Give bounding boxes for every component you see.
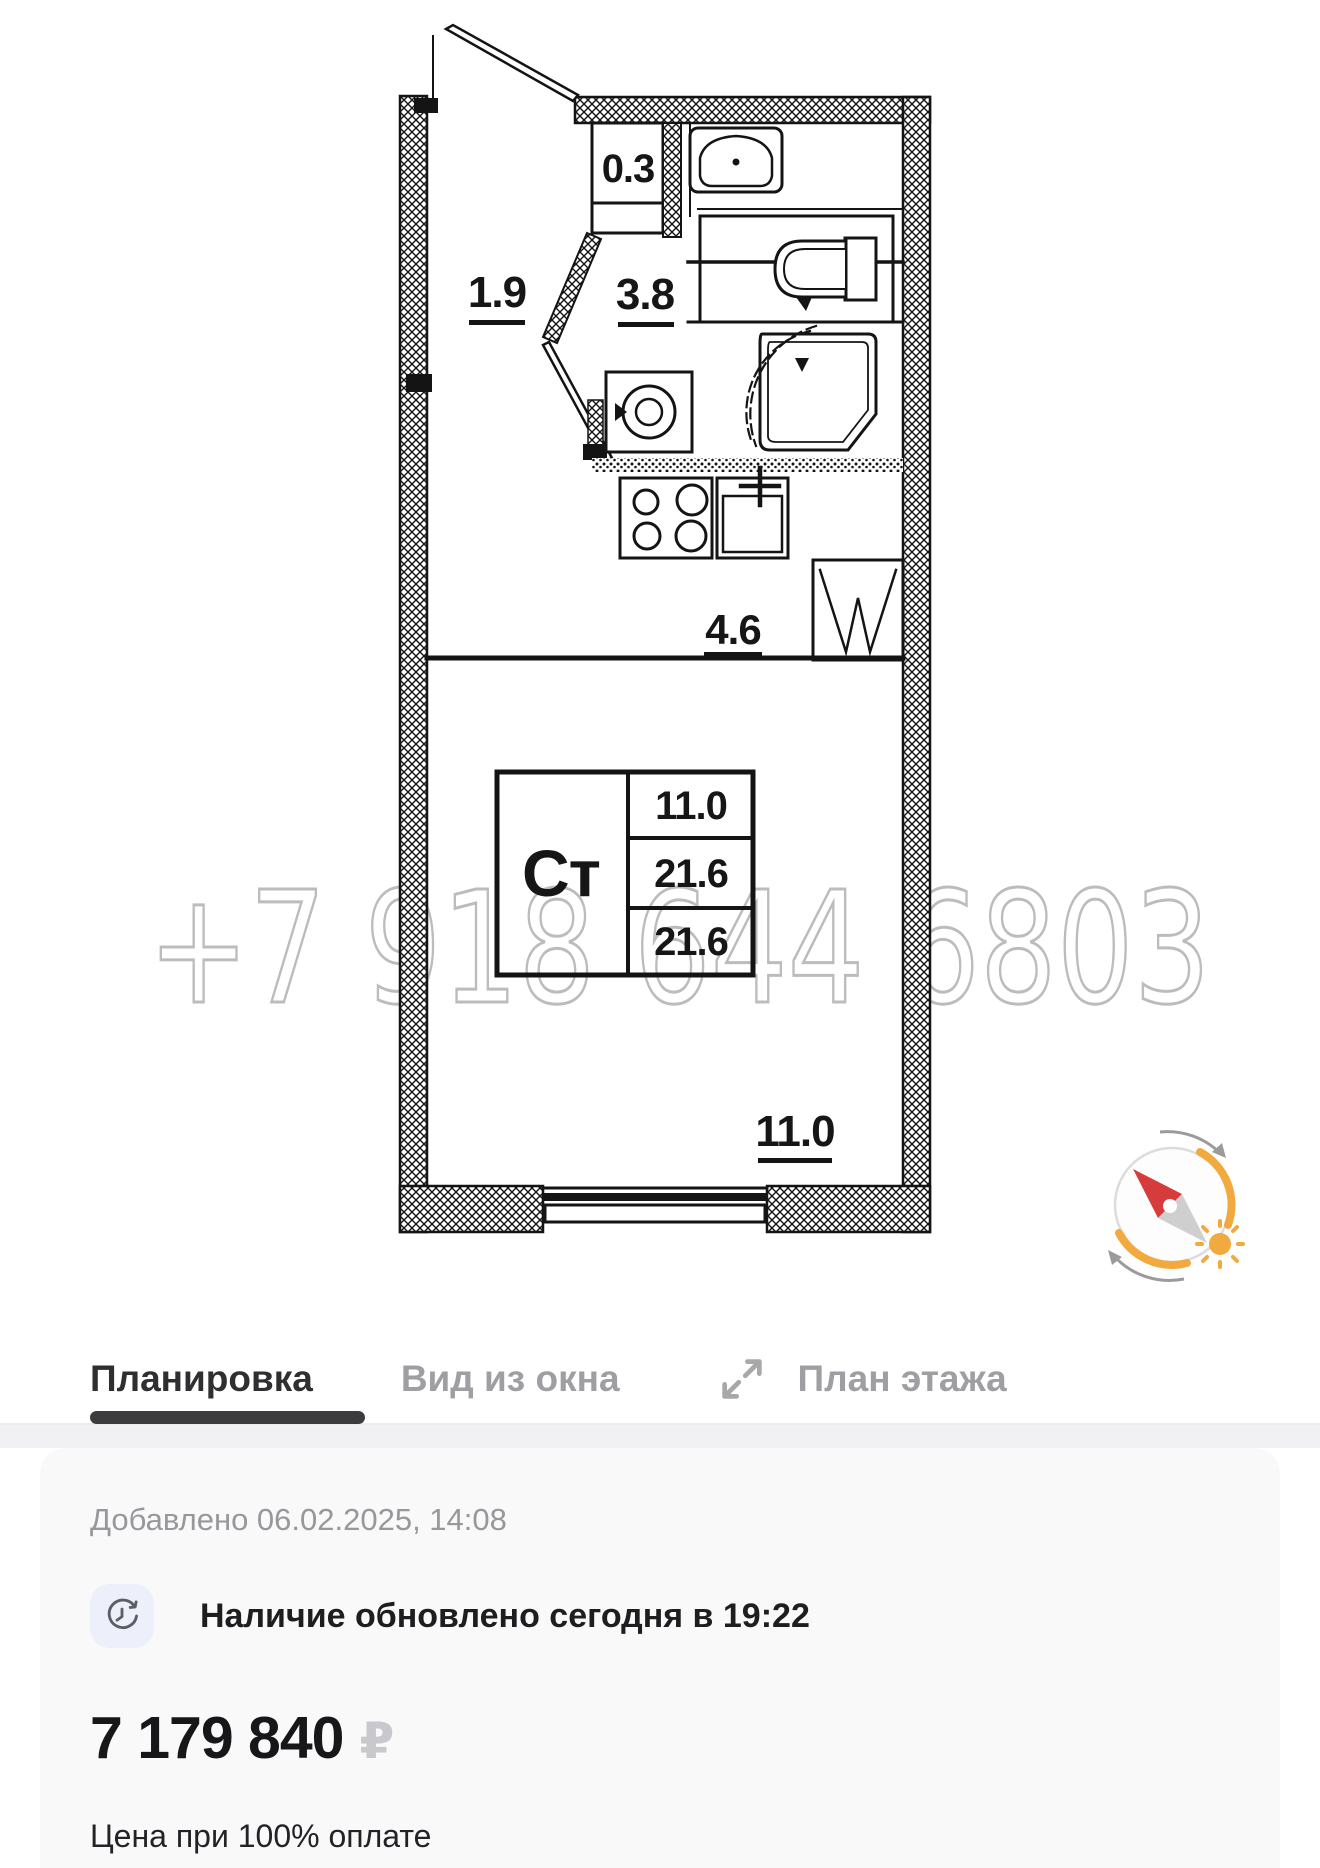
spec-table-value: 11.0 (655, 784, 727, 828)
washing-machine-icon (606, 372, 692, 452)
price-value: 7 179 840 (90, 1704, 343, 1772)
stove-icon (620, 478, 712, 558)
label-bathroom: 3.8 (616, 270, 675, 319)
added-date: Добавлено 06.02.2025, 14:08 (90, 1502, 1230, 1538)
kitchen-sink-icon (717, 468, 788, 558)
availability-clock-icon (90, 1584, 154, 1648)
light-partition (592, 458, 903, 472)
listing-page: +7 918 644 6803 (0, 0, 1320, 1868)
bathroom-sink-icon (690, 123, 782, 216)
tab-layout-label: Планировка (90, 1358, 313, 1400)
niche-zigzag (813, 560, 903, 660)
availability-row: Наличие обновлено сегодня в 19:22 (90, 1584, 1230, 1648)
spec-table-value: 21.6 (654, 852, 728, 896)
floorplan-drawing: Ст 11.0 21.6 21.6 1.9 0.3 3.8 4.6 11.0 (400, 25, 930, 1232)
label-kitchen: 4.6 (705, 606, 760, 653)
shower-icon (688, 322, 903, 450)
availability-text: Наличие обновлено сегодня в 19:22 (200, 1597, 810, 1636)
tab-floor-plan-label: План этажа (798, 1358, 1007, 1400)
label-room: 11.0 (755, 1107, 834, 1156)
label-hall: 1.9 (468, 268, 526, 317)
tab-layout[interactable]: Планировка (90, 1358, 313, 1400)
price: 7 179 840 ₽ (90, 1704, 1230, 1772)
sun-icon (1197, 1221, 1243, 1267)
toilet-icon (775, 238, 876, 311)
ruble-sign: ₽ (359, 1712, 394, 1770)
spec-table-type: Ст (522, 836, 600, 910)
tab-window-view[interactable]: Вид из окна (401, 1358, 620, 1400)
listing-info-card: Добавлено 06.02.2025, 14:08 Наличие обно… (40, 1448, 1280, 1868)
card-gap (0, 1425, 1320, 1448)
tab-bar: Планировка Вид из окна План этажа (0, 1332, 1320, 1425)
price-note: Цена при 100% оплате (90, 1818, 1230, 1855)
floorplan-viewer[interactable]: +7 918 644 6803 (0, 0, 1320, 1332)
tab-floor-plan[interactable]: План этажа (716, 1353, 1007, 1405)
active-tab-underline (90, 1411, 365, 1424)
bathroom-door (543, 233, 612, 461)
label-closet: 0.3 (602, 147, 655, 191)
spec-table-value: 21.6 (654, 920, 728, 964)
expand-icon (716, 1353, 768, 1405)
window (543, 1188, 767, 1222)
compass-icon[interactable] (1108, 1132, 1243, 1281)
tab-window-view-label: Вид из окна (401, 1358, 620, 1400)
